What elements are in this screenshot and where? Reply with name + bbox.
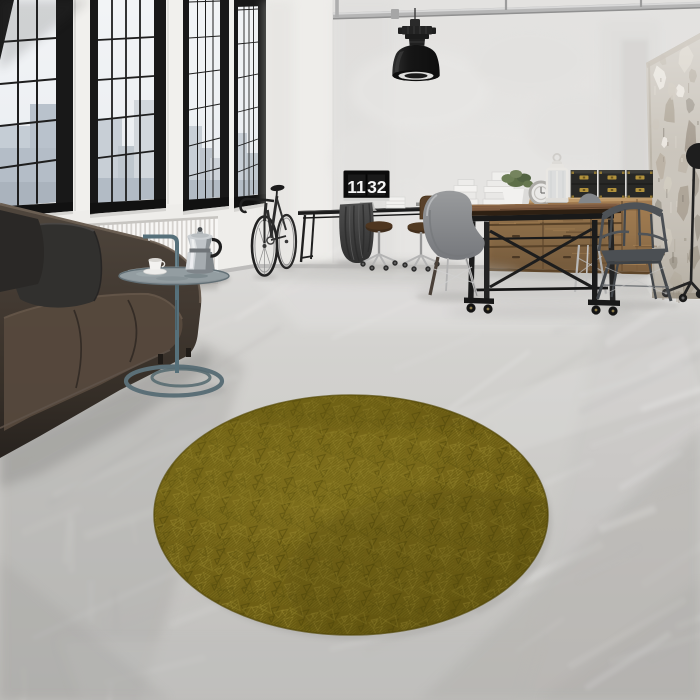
- svg-text:32: 32: [367, 177, 387, 197]
- svg-text:11: 11: [347, 177, 366, 197]
